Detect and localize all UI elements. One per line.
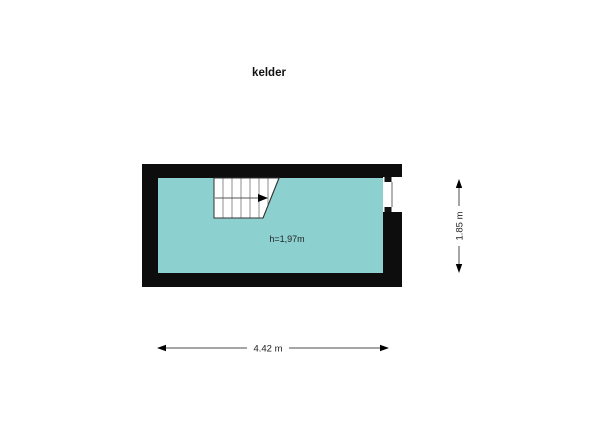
- window: [383, 177, 402, 212]
- window-frame-bottom: [385, 207, 392, 212]
- ceiling-height-label: h=1,97m: [269, 234, 304, 244]
- height-dimension: 1.85 m: [455, 179, 466, 273]
- width-dimension: 4.42 m: [157, 344, 389, 355]
- floorplan-page: kelder: [0, 0, 608, 430]
- height-dimension-arrow-top-icon: [456, 179, 462, 188]
- width-dimension-arrow-left-icon: [157, 345, 166, 351]
- height-dimension-label: 1.85 m: [455, 211, 466, 240]
- window-frame-top: [385, 177, 392, 182]
- width-dimension-arrow-right-icon: [380, 345, 389, 351]
- width-dimension-label: 4.42 m: [253, 344, 282, 355]
- floorplan-canvas: h=1,97m 4.42 m 1.85 m: [0, 0, 608, 430]
- height-dimension-arrow-bottom-icon: [456, 264, 462, 273]
- window-glass-line: [391, 182, 393, 207]
